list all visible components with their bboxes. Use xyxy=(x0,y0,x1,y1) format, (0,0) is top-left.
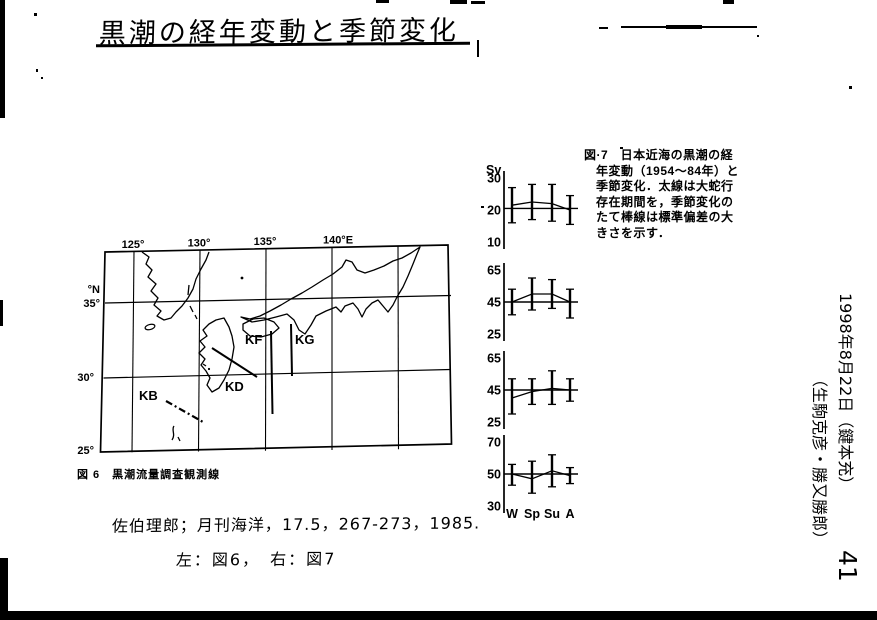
map-labels: 125° 130° 135° 140°E °N 35° 30° 25° KB K… xyxy=(77,235,353,458)
fig7-caption-line: たて棒線は標準偏差の大 xyxy=(596,210,774,226)
fig7-chart-1: 302010Sv xyxy=(478,164,588,270)
scan-speck xyxy=(757,35,759,37)
svg-text:25: 25 xyxy=(487,328,501,342)
svg-text:10: 10 xyxy=(487,236,501,250)
island-dot xyxy=(208,368,210,370)
lon-label-125: 125° xyxy=(122,239,145,251)
coast-korea xyxy=(142,252,209,320)
scan-speck xyxy=(723,0,734,4)
survey-line-label-kb: KB xyxy=(139,388,158,403)
fig6-caption: 図 6 黒潮流量調査観測線 xyxy=(77,466,220,482)
survey-line-label-kd: KD xyxy=(225,379,244,394)
svg-text:45: 45 xyxy=(487,384,501,398)
scan-speck xyxy=(41,77,43,79)
vertical-tick-mark xyxy=(477,40,479,57)
svg-text:W: W xyxy=(506,507,518,521)
fig7-caption-line: きさを示す． xyxy=(596,226,774,242)
islands-amami xyxy=(172,426,180,441)
svg-text:20: 20 xyxy=(487,204,501,218)
scan-speck xyxy=(36,69,38,72)
lat-label-30: 30° xyxy=(77,372,94,384)
svg-text:65: 65 xyxy=(487,264,501,278)
survey-lines xyxy=(166,324,292,422)
scan-edge-artifact xyxy=(0,0,5,118)
scan-speck xyxy=(849,86,852,89)
figure-reference-note: 左：図6， 右：図7 xyxy=(176,545,337,570)
fig7-caption-line: 図·7 日本近海の黒潮の経 xyxy=(584,148,774,164)
survey-line-label-kg: KG xyxy=(295,332,315,347)
lon-label-135: 135° xyxy=(254,236,277,248)
svg-text:65: 65 xyxy=(487,352,501,366)
margin-rule-blob xyxy=(666,25,702,29)
scanned-document-page: 黒潮の経年変動と季節変化 xyxy=(0,0,877,620)
survey-line-kb xyxy=(166,401,203,422)
scan-speck xyxy=(450,0,467,4)
fig7-caption-line: 季節変化．太線は大蛇行 xyxy=(596,179,774,195)
fig7-caption-line: 存在期間を，季節変化の xyxy=(596,195,774,211)
svg-text:50: 50 xyxy=(487,468,501,482)
svg-text:Sp: Sp xyxy=(524,507,540,521)
island-jeju xyxy=(145,323,156,330)
fig7-caption-line: 年変動（1954～84年）と xyxy=(596,164,774,180)
margin-note-rotated: 1998年8月22日（鍵本充） （生駒克彦・勝又勝郎） xyxy=(806,293,858,567)
page-number: 41 xyxy=(833,550,862,594)
lat-label-35: 35° xyxy=(83,298,100,310)
survey-line-kd xyxy=(212,348,257,377)
scan-speck xyxy=(376,0,389,3)
mark-east-sea xyxy=(188,285,189,295)
fig7-chart-4: 705030WSpSuA xyxy=(478,428,588,534)
lon-label-130: 130° xyxy=(188,238,211,250)
svg-text:70: 70 xyxy=(487,436,501,450)
map-grid xyxy=(101,245,452,452)
island-tsushima xyxy=(190,306,197,319)
chart-svg: 705030WSpSuA xyxy=(478,428,588,534)
survey-line-kf xyxy=(271,331,273,414)
scan-speck xyxy=(471,1,485,4)
citation-note: 佐伯理郎；月刊海洋，17.5，267-273，1985. xyxy=(112,509,481,536)
scan-edge-artifact xyxy=(0,300,3,326)
svg-text:Su: Su xyxy=(544,507,560,521)
svg-text:Sv: Sv xyxy=(486,164,501,177)
margin-names-note: （生駒克彦・勝又勝郎） xyxy=(806,371,832,567)
scan-edge-artifact xyxy=(0,611,877,620)
lat-unit-label: °N xyxy=(88,284,100,296)
marks-near-kd xyxy=(203,364,206,366)
survey-line-kg xyxy=(291,324,292,376)
scan-speck xyxy=(34,13,37,16)
lat-label-25: 25° xyxy=(77,445,94,457)
svg-text:30: 30 xyxy=(487,500,501,514)
chart-svg: 302010Sv xyxy=(478,164,588,270)
island-dot xyxy=(241,277,244,280)
fig6-map: 125° 130° 135° 140°E °N 35° 30° 25° KB K… xyxy=(60,230,480,475)
margin-rule-dash xyxy=(599,27,608,29)
lon-label-140e: 140°E xyxy=(323,235,353,247)
svg-text:45: 45 xyxy=(487,296,501,310)
fig7-caption: 図·7 日本近海の黒潮の経 年変動（1954～84年）と 季節変化．太線は大蛇行… xyxy=(584,148,774,241)
svg-text:A: A xyxy=(565,507,574,521)
coast-honshu xyxy=(241,247,420,334)
survey-line-label-kf: KF xyxy=(245,332,262,347)
margin-date-note: 1998年8月22日（鍵本充） xyxy=(832,293,858,567)
